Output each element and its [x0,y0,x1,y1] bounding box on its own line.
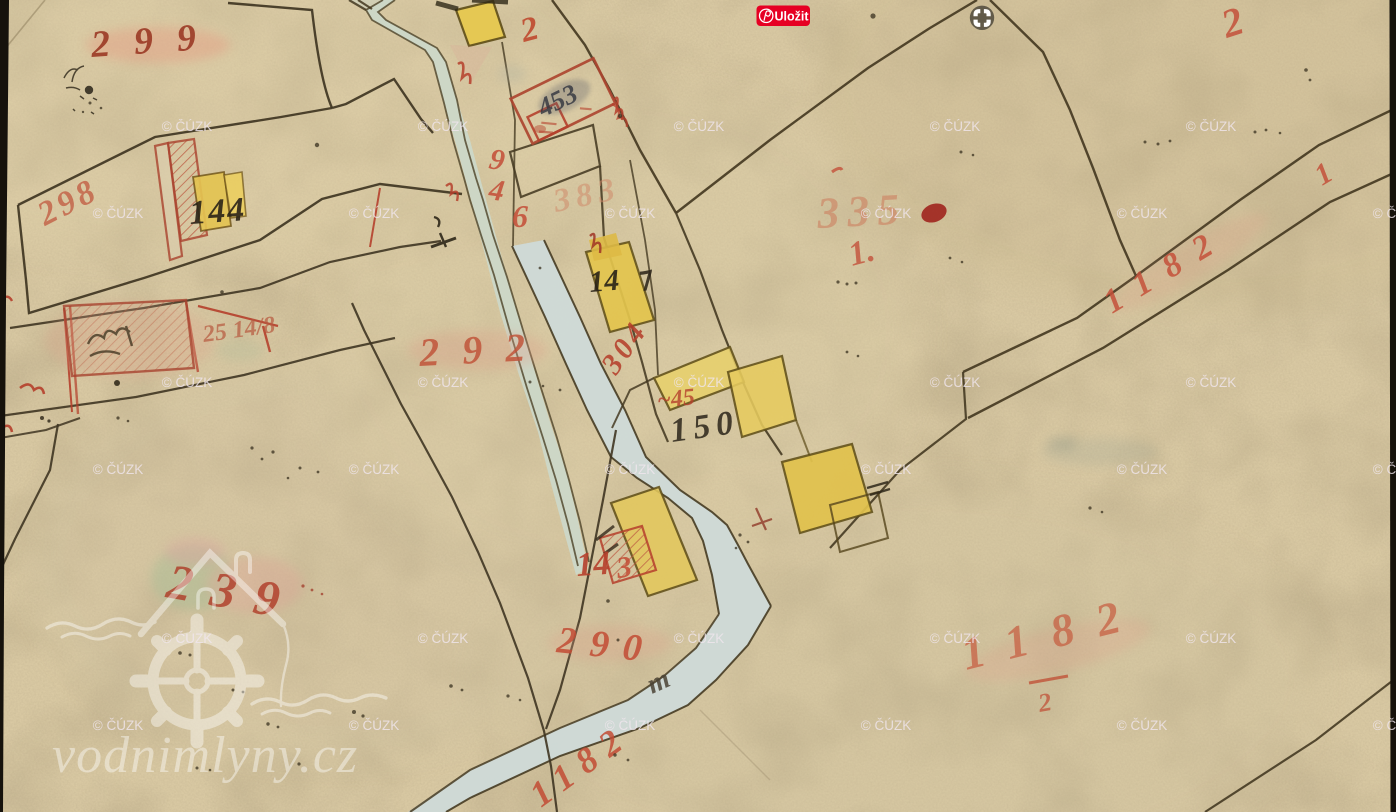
svg-text:© ČÚZK: © ČÚZK [1373,718,1396,733]
svg-text:© ČÚZK: © ČÚZK [93,206,143,221]
svg-text:© ČÚZK: © ČÚZK [1117,206,1167,221]
svg-text:© ČÚZK: © ČÚZK [861,462,911,477]
svg-text:© ČÚZK: © ČÚZK [418,375,468,390]
svg-text:© ČÚZK: © ČÚZK [1373,206,1396,221]
svg-text:© ČÚZK: © ČÚZK [162,375,212,390]
svg-text:© ČÚZK: © ČÚZK [605,462,655,477]
svg-text:© ČÚZK: © ČÚZK [930,631,980,646]
svg-text:© ČÚZK: © ČÚZK [349,206,399,221]
svg-text:© ČÚZK: © ČÚZK [418,119,468,134]
svg-text:14: 14 [588,263,621,298]
svg-text:© ČÚZK: © ČÚZK [1117,462,1167,477]
svg-text:© ČÚZK: © ČÚZK [861,206,911,221]
svg-text:© ČÚZK: © ČÚZK [93,462,143,477]
svg-text:© ČÚZK: © ČÚZK [162,119,212,134]
svg-text:© ČÚZK: © ČÚZK [605,206,655,221]
svg-text:© ČÚZK: © ČÚZK [1117,718,1167,733]
svg-text:© ČÚZK: © ČÚZK [930,375,980,390]
svg-text:14: 14 [575,545,611,584]
svg-text:© ČÚZK: © ČÚZK [1186,631,1236,646]
svg-text:© ČÚZK: © ČÚZK [861,718,911,733]
svg-text:© ČÚZK: © ČÚZK [1186,119,1236,134]
svg-text:© ČÚZK: © ČÚZK [93,718,143,733]
svg-text:6: 6 [512,198,528,234]
svg-text:© ČÚZK: © ČÚZK [605,718,655,733]
svg-text:© ČÚZK: © ČÚZK [930,119,980,134]
svg-text:© ČÚZK: © ČÚZK [1373,462,1396,477]
svg-text:© ČÚZK: © ČÚZK [674,119,724,134]
svg-text:© ČÚZK: © ČÚZK [674,375,724,390]
svg-text:© ČÚZK: © ČÚZK [418,631,468,646]
svg-text:© ČÚZK: © ČÚZK [162,631,212,646]
svg-text:292: 292 [417,323,549,375]
svg-text:© ČÚZK: © ČÚZK [349,718,399,733]
svg-text:144: 144 [188,191,247,232]
svg-text:© ČÚZK: © ČÚZK [1186,375,1236,390]
svg-text:vodnimlyny.cz: vodnimlyny.cz [52,727,358,784]
svg-text:© ČÚZK: © ČÚZK [349,462,399,477]
svg-text:© ČÚZK: © ČÚZK [674,631,724,646]
svg-text:Uložit: Uložit [775,9,810,23]
